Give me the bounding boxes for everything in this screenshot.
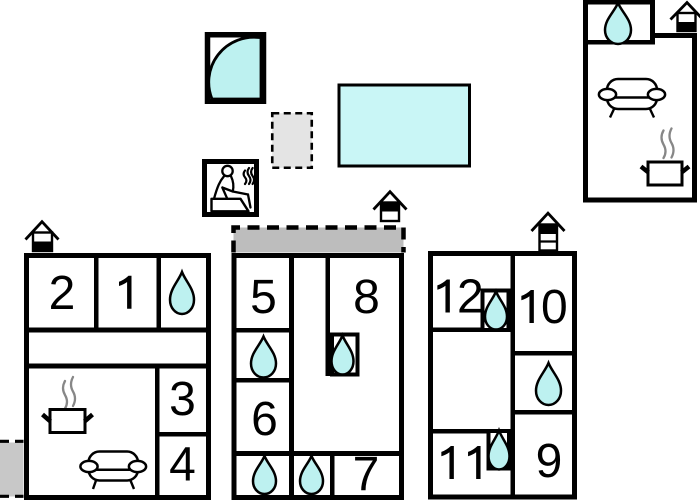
svg-text:5: 5 [250,271,277,324]
svg-text:8: 8 [353,271,380,324]
svg-text:2: 2 [49,267,76,320]
svg-text:7: 7 [353,448,380,500]
svg-text:9: 9 [536,435,563,488]
svg-text:6: 6 [251,393,278,446]
svg-text:3: 3 [169,373,196,426]
svg-text:4: 4 [169,439,196,492]
svg-text:0: 0 [541,281,568,334]
svg-text:2: 2 [457,271,484,324]
